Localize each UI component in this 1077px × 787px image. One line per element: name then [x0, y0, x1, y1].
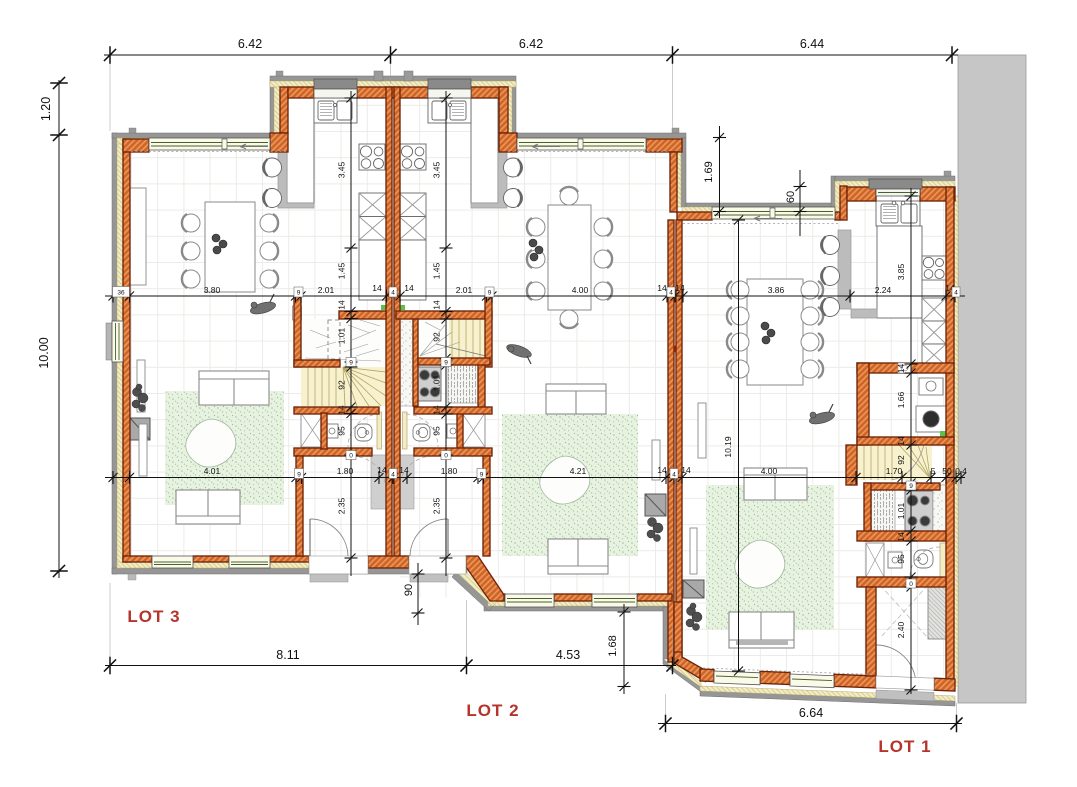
- svg-text:9: 9: [297, 472, 301, 479]
- svg-text:36: 36: [117, 290, 125, 297]
- svg-text:2.01: 2.01: [456, 285, 473, 295]
- svg-text:14: 14: [657, 465, 667, 475]
- svg-text:6.42: 6.42: [238, 37, 262, 51]
- svg-text:92: 92: [337, 380, 347, 390]
- svg-text:10.00: 10.00: [37, 337, 51, 368]
- svg-text:9: 9: [488, 290, 492, 297]
- svg-text:1.70: 1.70: [886, 466, 903, 476]
- svg-text:2.40: 2.40: [896, 621, 906, 638]
- svg-text:14: 14: [337, 300, 347, 310]
- svg-text:4.00: 4.00: [572, 285, 589, 295]
- svg-text:LOT 3: LOT 3: [127, 607, 180, 626]
- svg-text:14: 14: [377, 465, 387, 475]
- svg-text:0: 0: [909, 581, 913, 588]
- svg-text:0: 0: [349, 453, 353, 460]
- svg-text:LOT 1: LOT 1: [878, 737, 931, 756]
- svg-text:1.20: 1.20: [39, 97, 53, 121]
- svg-text:90: 90: [403, 584, 415, 596]
- svg-text:9: 9: [480, 472, 484, 479]
- svg-text:1.45: 1.45: [337, 262, 347, 279]
- svg-text:14: 14: [432, 300, 442, 310]
- svg-text:1.69: 1.69: [703, 161, 715, 182]
- svg-text:2.35: 2.35: [337, 497, 347, 514]
- svg-text:LOT 2: LOT 2: [466, 701, 519, 720]
- svg-text:2.35: 2.35: [432, 497, 442, 514]
- svg-text:50: 50: [942, 466, 952, 476]
- svg-text:95: 95: [432, 426, 442, 436]
- svg-text:4: 4: [669, 290, 673, 297]
- svg-text:2.24: 2.24: [875, 285, 892, 295]
- svg-text:14: 14: [372, 283, 382, 293]
- svg-text:14: 14: [337, 405, 347, 415]
- svg-text:3.45: 3.45: [337, 161, 347, 178]
- svg-text:1.68: 1.68: [607, 635, 619, 656]
- svg-text:14: 14: [675, 283, 685, 293]
- svg-text:6.42: 6.42: [519, 37, 543, 51]
- svg-text:60: 60: [785, 191, 797, 203]
- svg-text:1.01: 1.01: [432, 374, 442, 391]
- svg-text:14: 14: [896, 532, 906, 542]
- svg-text:3.85: 3.85: [896, 263, 906, 280]
- svg-text:8.11: 8.11: [276, 648, 299, 662]
- svg-text:4: 4: [672, 472, 676, 479]
- svg-text:95: 95: [896, 554, 906, 564]
- svg-text:1.66: 1.66: [896, 391, 906, 408]
- svg-text:5: 5: [931, 466, 936, 476]
- svg-text:3.80: 3.80: [204, 285, 221, 295]
- svg-text:4.53: 4.53: [556, 648, 580, 662]
- svg-text:4: 4: [954, 290, 958, 297]
- svg-text:2.01: 2.01: [318, 285, 335, 295]
- svg-text:14: 14: [896, 436, 906, 446]
- svg-text:9: 9: [444, 360, 448, 367]
- svg-text:1.80: 1.80: [441, 466, 458, 476]
- svg-text:14: 14: [896, 364, 906, 374]
- svg-text:14: 14: [681, 465, 691, 475]
- svg-text:1.45: 1.45: [432, 262, 442, 279]
- svg-text:0.4: 0.4: [955, 466, 967, 476]
- svg-text:3.45: 3.45: [432, 161, 442, 178]
- svg-text:6.44: 6.44: [800, 37, 824, 51]
- svg-text:4.21: 4.21: [570, 466, 587, 476]
- svg-text:4.00: 4.00: [761, 466, 778, 476]
- svg-text:9: 9: [349, 360, 353, 367]
- svg-text:4: 4: [391, 472, 395, 479]
- svg-text:9: 9: [909, 483, 913, 490]
- svg-text:9: 9: [297, 290, 301, 297]
- svg-text:4: 4: [391, 290, 395, 297]
- svg-text:14: 14: [432, 405, 442, 415]
- svg-text:14: 14: [399, 465, 409, 475]
- svg-text:92: 92: [896, 455, 906, 465]
- svg-text:14: 14: [657, 283, 667, 293]
- svg-text:1.80: 1.80: [337, 466, 354, 476]
- svg-text:92: 92: [432, 332, 442, 342]
- svg-text:1.01: 1.01: [896, 502, 906, 519]
- svg-text:14: 14: [404, 283, 414, 293]
- svg-text:4.01: 4.01: [204, 466, 221, 476]
- svg-text:3.86: 3.86: [768, 285, 785, 295]
- svg-text:6.64: 6.64: [799, 706, 823, 720]
- svg-text:0: 0: [444, 453, 448, 460]
- svg-text:1.01: 1.01: [337, 327, 347, 344]
- svg-text:95: 95: [337, 426, 347, 436]
- svg-text:10.19: 10.19: [723, 436, 733, 458]
